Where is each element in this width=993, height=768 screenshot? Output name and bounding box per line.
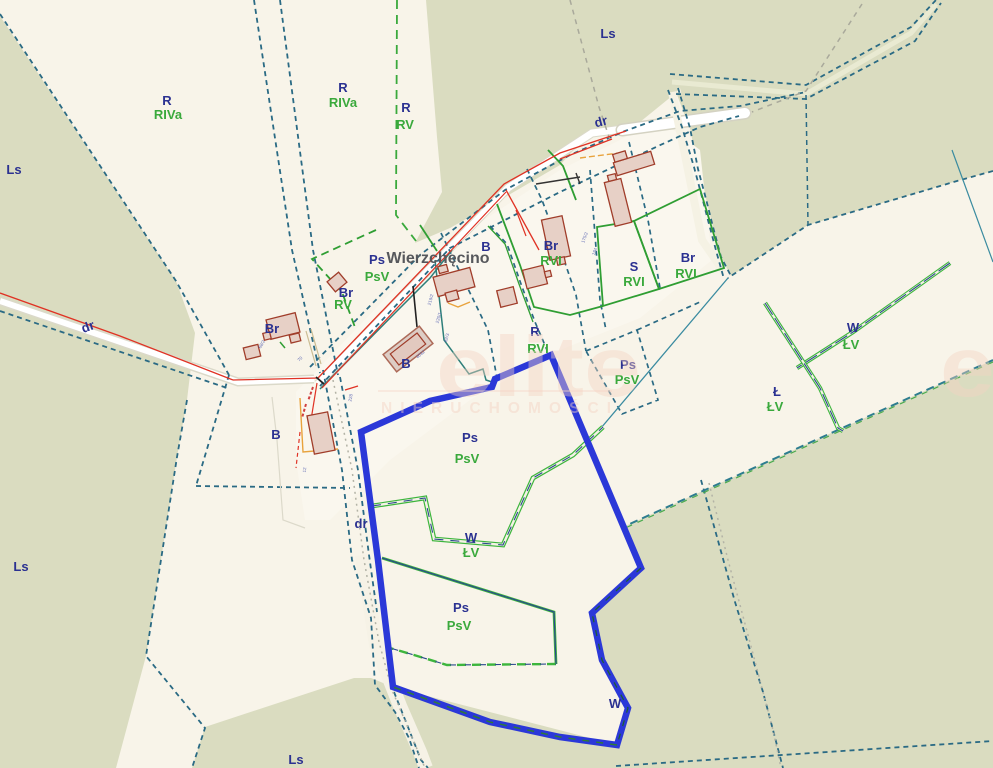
svg-text:Ps: Ps <box>453 600 469 615</box>
svg-text:R: R <box>401 100 411 115</box>
svg-text:Ls: Ls <box>6 162 21 177</box>
svg-text:RVI: RVI <box>675 266 696 281</box>
svg-text:PsV: PsV <box>447 618 472 633</box>
svg-text:ŁV: ŁV <box>843 337 860 352</box>
svg-text:W: W <box>465 530 478 545</box>
svg-text:Ls: Ls <box>13 559 28 574</box>
svg-text:RV: RV <box>396 117 414 132</box>
svg-text:B: B <box>271 427 280 442</box>
svg-text:Ł: Ł <box>773 384 781 399</box>
svg-text:Ls: Ls <box>600 26 615 41</box>
svg-text:RIVa: RIVa <box>154 107 183 122</box>
svg-text:Br: Br <box>681 250 695 265</box>
svg-text:NIERUCHOMOŚCI: NIERUCHOMOŚCI <box>381 399 611 417</box>
svg-text:B: B <box>401 356 410 371</box>
svg-text:PsV: PsV <box>365 269 390 284</box>
svg-text:RIVa: RIVa <box>329 95 358 110</box>
svg-text:R: R <box>338 80 348 95</box>
svg-text:RV: RV <box>334 297 352 312</box>
svg-text:PsV: PsV <box>455 451 480 466</box>
svg-text:dr: dr <box>355 516 368 531</box>
svg-text:Ls: Ls <box>288 752 303 767</box>
svg-text:Br: Br <box>265 321 279 336</box>
svg-text:12: 12 <box>302 467 307 473</box>
svg-text:RVI: RVI <box>623 274 644 289</box>
svg-text:el: el <box>940 320 993 415</box>
svg-text:Ps: Ps <box>462 430 478 445</box>
svg-text:Wierzchęcino: Wierzchęcino <box>387 250 490 267</box>
svg-text:Br: Br <box>544 238 558 253</box>
svg-text:W: W <box>609 696 622 711</box>
svg-text:ŁV: ŁV <box>463 545 480 560</box>
svg-text:ŁV: ŁV <box>767 399 784 414</box>
svg-text:R: R <box>162 93 172 108</box>
svg-text:RVI: RVI <box>540 253 561 268</box>
svg-text:W: W <box>847 320 860 335</box>
svg-text:Ps: Ps <box>369 252 385 267</box>
svg-text:S: S <box>630 259 639 274</box>
